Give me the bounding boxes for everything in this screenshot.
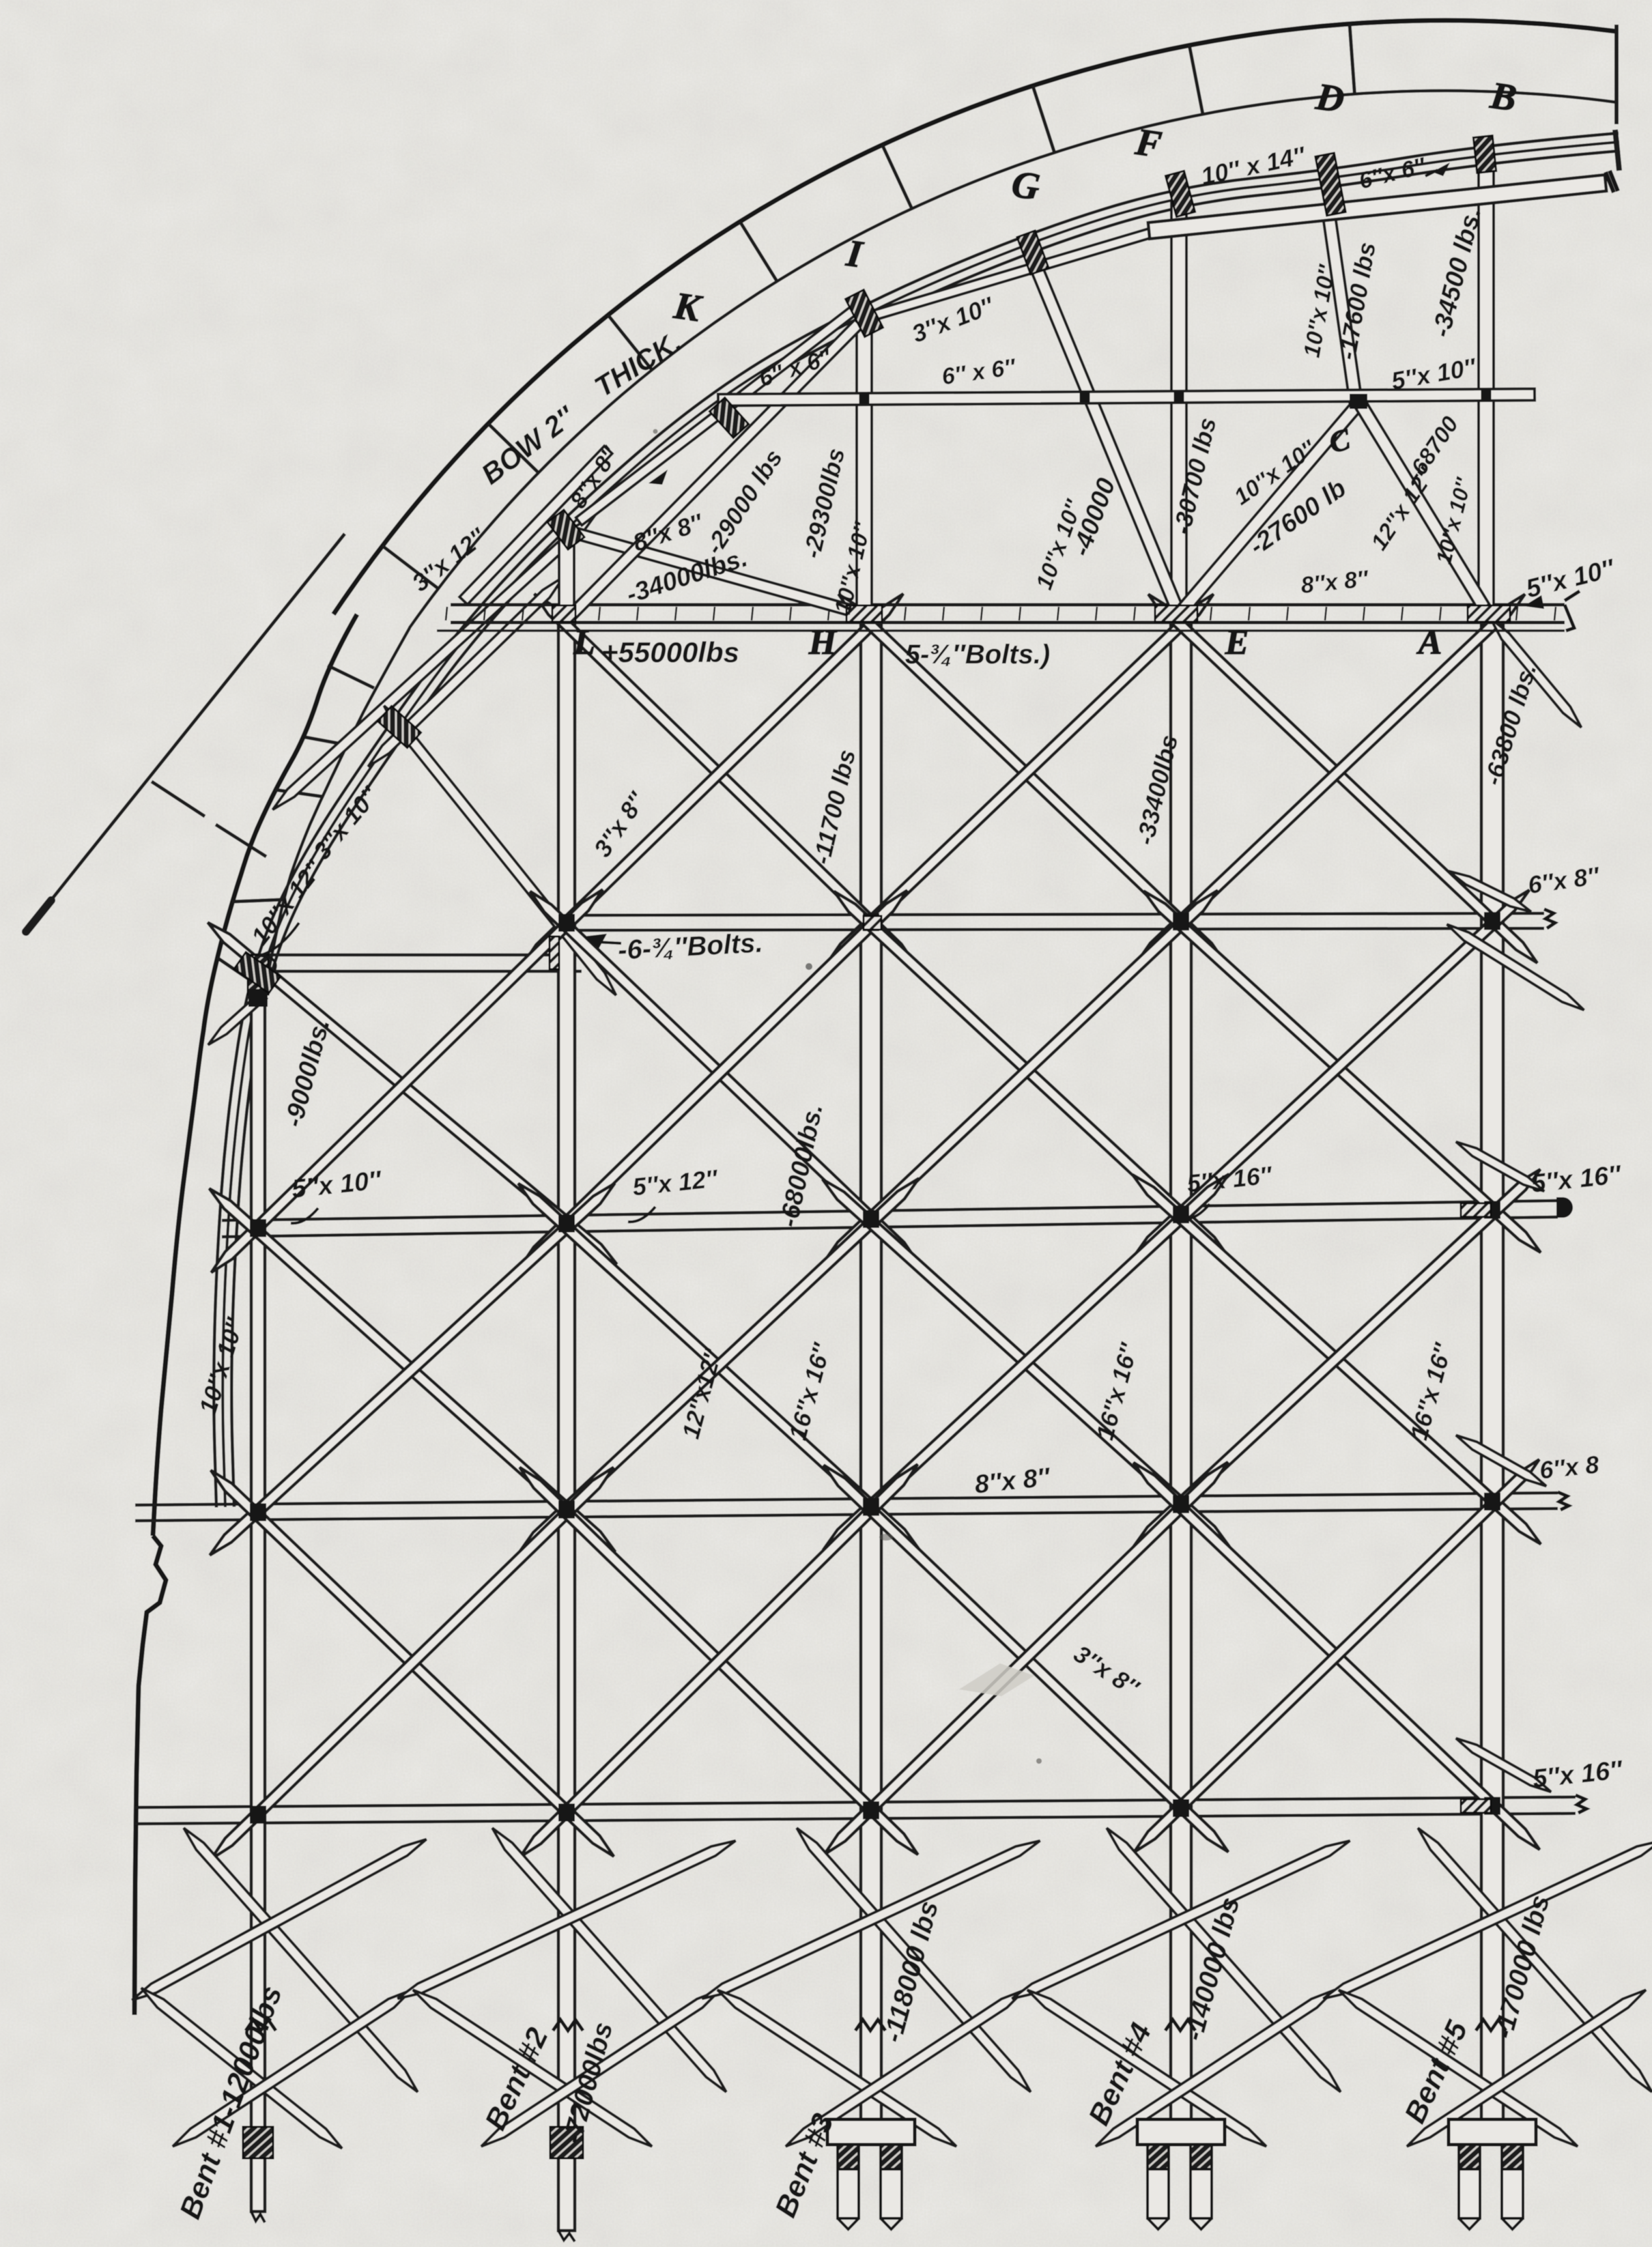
svg-text:D: D [1313,76,1347,121]
svg-text:E: E [1225,623,1249,662]
svg-text:+55000lbs: +55000lbs [601,636,739,668]
svg-text:A: A [1416,623,1442,662]
svg-text:L: L [573,623,595,662]
svg-text:G: G [1009,163,1042,209]
svg-text:H: H [808,623,838,662]
svg-text:5-¾″Bolts.): 5-¾″Bolts.) [905,640,1051,670]
